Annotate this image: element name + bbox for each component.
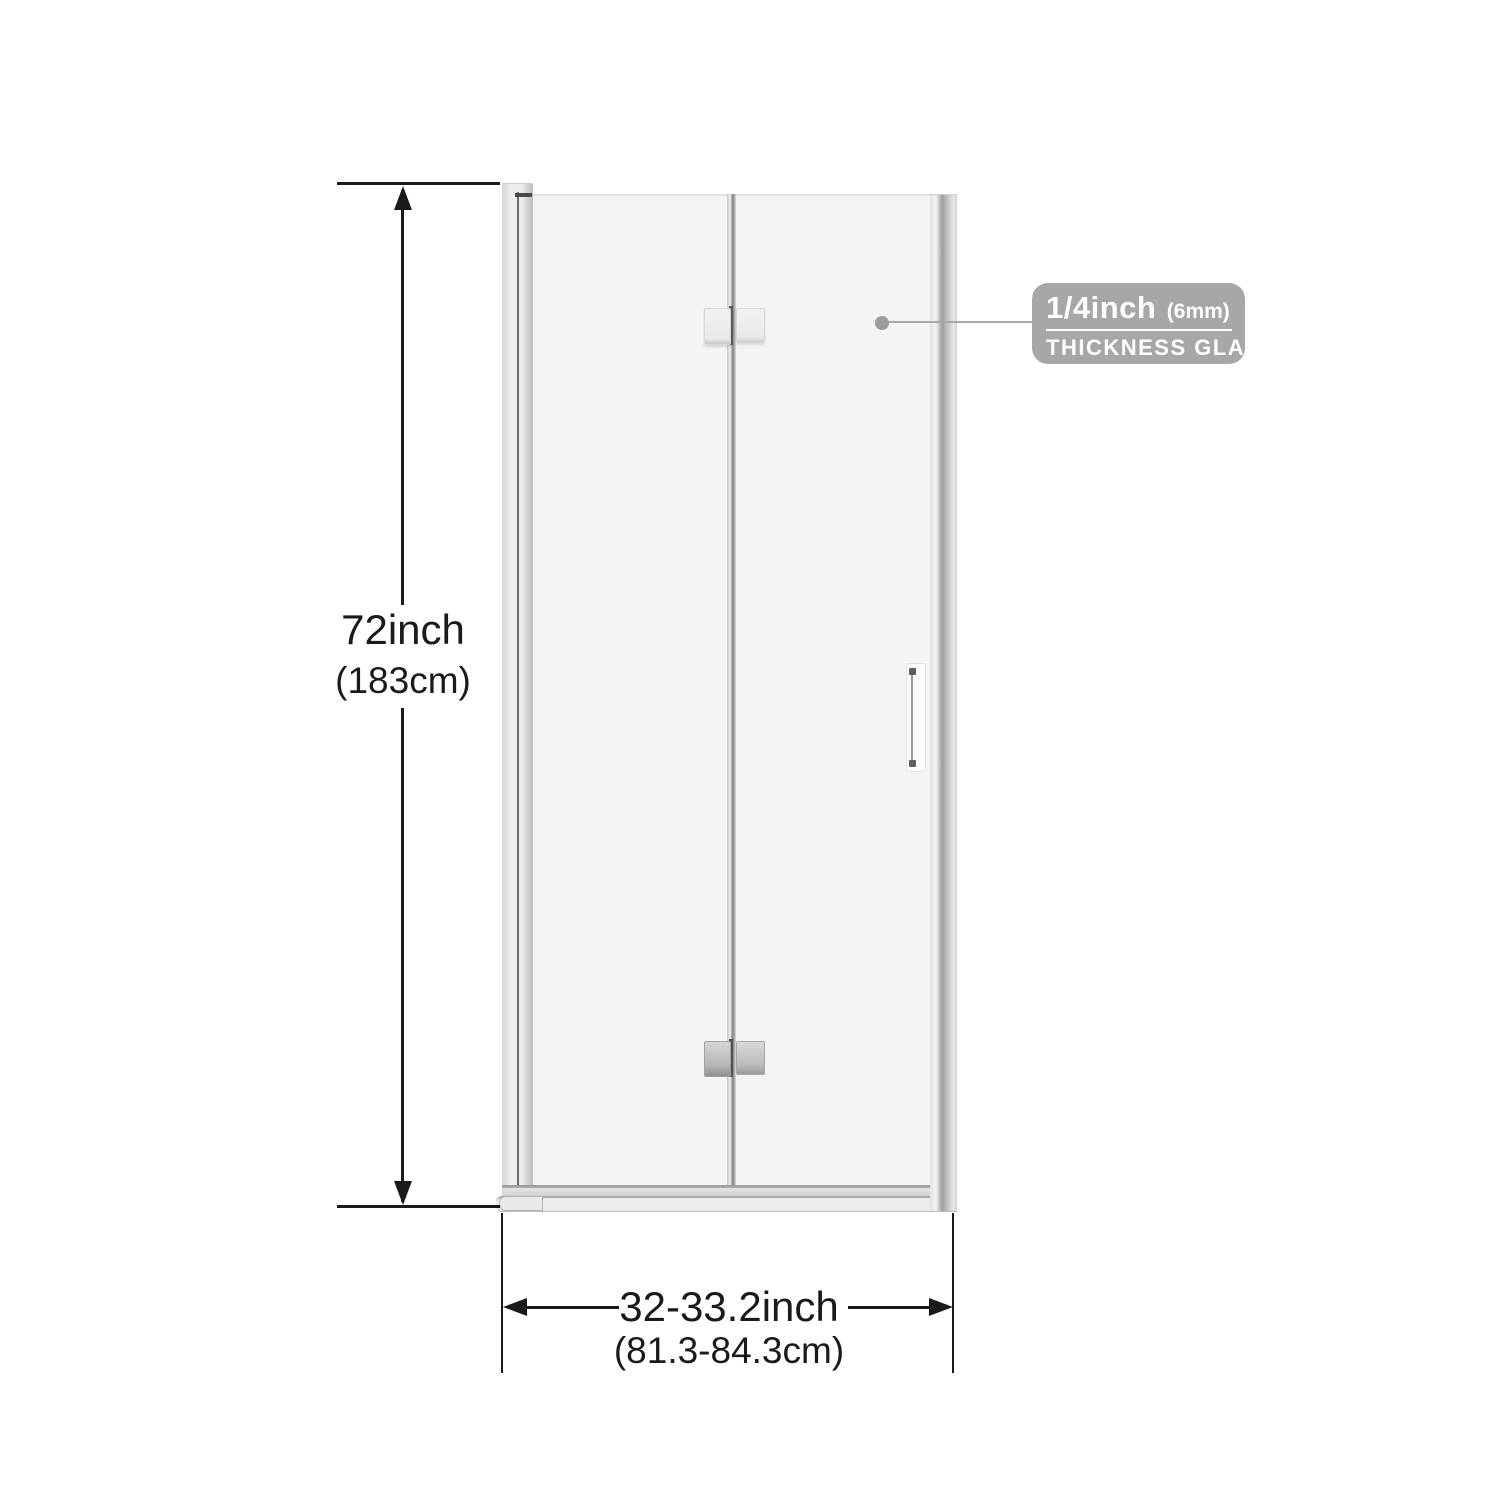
arrow-down-icon (394, 1181, 412, 1205)
height-label: 72inch (308, 606, 498, 654)
height-dimension-bottom-tick (337, 1205, 500, 1208)
glass-thickness-caption: THICKNESS GLASS (1046, 335, 1232, 361)
width-label: 32-33.2inch (553, 1283, 905, 1331)
bottom-hinge-right-plate (736, 1041, 765, 1075)
door-left-profile-foot (499, 1196, 543, 1211)
product-dimension-diagram: 72inch (183cm) 32-33.2inch (81.3-84.3cm)… (0, 0, 1500, 1500)
bottom-hinge-left-plate (704, 1041, 731, 1077)
door-top-pivot-bracket (515, 193, 532, 197)
door-handle-rod (911, 673, 913, 763)
callout-leader-line (886, 321, 1036, 323)
top-hinge-right-plate (736, 308, 765, 343)
height-dimension-line-upper (401, 190, 404, 605)
glass-thickness-inches: 1/4inch (1046, 290, 1156, 325)
width-dimension-right-extension (952, 1213, 954, 1373)
width-label-metric: (81.3-84.3cm) (553, 1330, 905, 1372)
height-label-metric: (183cm) (308, 660, 498, 702)
door-bottom-threshold (496, 1196, 957, 1212)
callout-anchor-dot (875, 316, 889, 330)
badge-divider-line (1046, 329, 1232, 331)
top-hinge-left-plate (704, 308, 731, 345)
height-dimension-top-tick (337, 182, 500, 185)
door-handle-top-cap (909, 668, 916, 675)
door-right-wall-profile (930, 194, 957, 1211)
door-handle-bottom-cap (909, 760, 916, 767)
glass-thickness-mm: (6mm) (1167, 300, 1230, 323)
height-dimension-line-lower (401, 708, 404, 1202)
door-handle (906, 663, 926, 772)
arrow-right-icon (929, 1298, 953, 1316)
width-dimension-left-extension (501, 1213, 503, 1373)
glass-thickness-size-row: 1/4inch (6mm) (1046, 290, 1232, 326)
glass-thickness-badge: 1/4inch (6mm) THICKNESS GLASS (1032, 283, 1245, 364)
door-left-profile-seam (517, 192, 519, 1204)
